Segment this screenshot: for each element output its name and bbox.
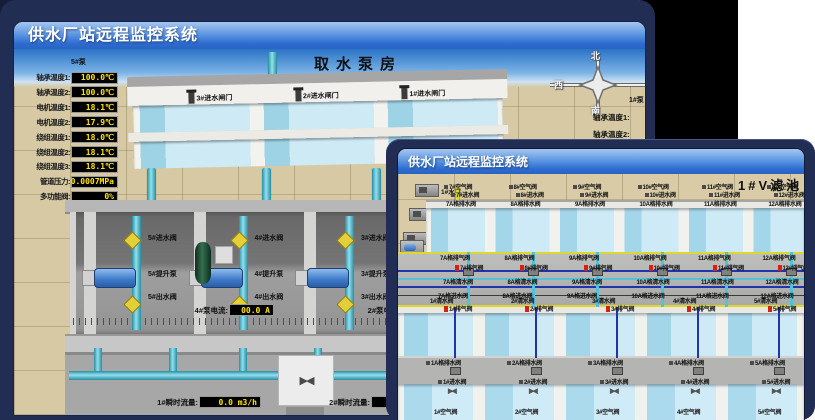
exhaust-valve-label: 12#排气阀 <box>778 263 805 272</box>
bay-outlet-valve-label: 5#出水阀 <box>148 292 177 302</box>
clean-water-valve-label: 10A格清水阀 <box>637 277 670 286</box>
drain-valve-label: 1A格排水阀 <box>426 358 461 367</box>
sensor-readout-row: 电机温度2: 17.9℃ <box>24 116 124 129</box>
valve-icon <box>573 185 577 189</box>
butterfly-valve-icon: ▶◀ <box>529 387 536 395</box>
compass-rose-icon <box>534 49 645 119</box>
valve-icon <box>767 185 771 189</box>
front-window-titlebar[interactable]: 供水厂站远程监控系统 <box>398 149 804 174</box>
gate-label: 1#进水闸门 <box>409 88 445 99</box>
inlet-valve-label: 12#进水阀 <box>774 190 805 199</box>
drain-valve-label: 8A格排水阀 <box>511 199 541 208</box>
drain-valve-label: 9A格排水阀 <box>575 199 605 208</box>
butterfly-valve-icon: ▶◀ <box>448 387 455 395</box>
exhaust-a-valve-label: 9A格排气阀 <box>569 253 599 262</box>
sensor-value: 100.0℃ <box>71 72 118 84</box>
column-valve-icon <box>450 367 461 375</box>
red-valve-icon <box>455 265 459 271</box>
valve-icon <box>669 361 673 365</box>
bay-pump-label: 4#提升泵 <box>255 269 284 279</box>
inlet-valve-label: 7#进水阀 <box>451 190 479 199</box>
intake-gate[interactable]: 3#进水闸门 <box>188 91 232 104</box>
pump1-panel-label: 轴承温度1: <box>593 112 630 123</box>
desktop: 供水厂站远程监控系统 取水泵房 3#进水闸门 <box>0 0 815 420</box>
sensor-readout-row: 轴承温度2: 100.0℃ <box>24 86 124 99</box>
inlet-valve-label: 9#进水阀 <box>580 190 608 199</box>
pipe-stub <box>94 348 102 372</box>
valve-icon <box>645 193 649 197</box>
clean-water-valve-label: 12A格清水阀 <box>766 277 799 286</box>
sensor-value: 18.0℃ <box>71 131 118 143</box>
valve-icon <box>426 361 430 365</box>
drain-valve-label: 4A格排水阀 <box>669 358 704 367</box>
valve-icon <box>750 361 754 365</box>
filter-pool: 7#空气阀 7#进水阀 7A格排水阀 7A格排气阀 7#排气阀 7A格清水阀 7… <box>398 182 804 420</box>
red-valve-icon <box>649 265 653 271</box>
flow1-readout: 1#瞬时流量: 0.0 m3/h <box>118 396 261 408</box>
bay-inlet-valve-label: 5#进水阀 <box>148 233 177 243</box>
butterfly-valve-icon: ▶◀ <box>610 387 617 395</box>
valve-icon <box>709 193 713 197</box>
exhaust-valve-label: 5#排气阀 <box>768 304 796 313</box>
valve-icon <box>702 185 706 189</box>
sensor-label: 电机温度2: <box>24 117 70 128</box>
pump5-panel-header: 5#泵 <box>71 57 86 67</box>
column-pipe <box>535 307 537 358</box>
exhaust-a-valve-label: 10A格排气阀 <box>634 253 667 262</box>
sensor-value: 18.1℃ <box>71 146 118 158</box>
pump4-current-value: 00.0 A <box>229 304 274 316</box>
lift-pump-icon[interactable] <box>295 268 347 286</box>
gate-valve-icon <box>188 92 194 104</box>
flow1-value: 0.0 m3/h <box>199 396 261 408</box>
sensor-value: 100.0℃ <box>71 86 118 98</box>
inlet-valve-label: 3#进水阀 <box>600 377 628 386</box>
exhaust-valve-label: 10#排气阀 <box>649 263 680 272</box>
column-valve-icon <box>612 367 623 375</box>
valve-icon <box>438 380 442 384</box>
control-cabinet <box>215 246 233 264</box>
drain-valve-label: 5A格排水阀 <box>750 358 785 367</box>
column-pipe <box>454 307 456 358</box>
column-pipe <box>697 307 699 358</box>
valve-icon <box>762 380 766 384</box>
drain-valve-label: 12A格排水阀 <box>769 199 802 208</box>
drain-valve-label: 11A格排水阀 <box>704 199 737 208</box>
sensor-label: 绕组温度3: <box>24 161 70 172</box>
exhaust-valve-label: 2#排气阀 <box>525 304 553 313</box>
valve-pedestal <box>286 407 324 415</box>
gate-valve-icon <box>401 87 407 99</box>
back-window-title: 供水厂站远程监控系统 <box>28 27 198 44</box>
red-valve-icon <box>713 265 717 271</box>
pipe-stub <box>239 348 247 372</box>
pipe-stub <box>169 348 177 372</box>
column-pipe <box>616 307 618 358</box>
valve-icon <box>774 193 778 197</box>
filter-scene: 1#V滤池 1#水泵 2#水泵 3#水泵 <box>398 174 804 420</box>
drain-valve-label: 2A格排水阀 <box>507 358 542 367</box>
exhaust-valve-label: 1#排气阀 <box>444 304 472 313</box>
valve-icon <box>588 361 592 365</box>
red-valve-icon <box>584 265 588 271</box>
clean-water-valve-label: 11A格清水阀 <box>701 277 734 286</box>
intake-gate[interactable]: 2#进水闸门 <box>295 89 339 102</box>
flow1-label: 1#瞬时流量: <box>118 397 198 408</box>
compass-west: 西 <box>554 78 563 91</box>
inlet-valve-label: 2#进水阀 <box>519 377 547 386</box>
air-valve-label: 4#空气阀 <box>677 407 700 416</box>
inlet-valve-label: 8#进水阀 <box>516 190 544 199</box>
exhaust-valve-label: 11#排气阀 <box>713 263 744 272</box>
exhaust-valve-label: 3#排气阀 <box>606 304 634 313</box>
clean-water-valve-label: 9A格清水阀 <box>572 277 602 286</box>
valve-icon <box>516 193 520 197</box>
bay-pump-label: 5#提升泵 <box>148 269 177 279</box>
compass-north: 北 <box>591 49 600 62</box>
exhaust-a-valve-label: 11A格排气阀 <box>698 253 731 262</box>
compass: 北 西 南 <box>534 49 645 119</box>
valve-icon <box>451 193 455 197</box>
exhaust-a-valve-label: 7A格排气阀 <box>440 253 470 262</box>
filter-column-bottom[interactable]: 4#清水阀 4#排气阀 4A格排水阀 4#进水阀 ▶◀ 4#空气阀 <box>657 292 737 420</box>
clean-water-valve-label: 7A格清水阀 <box>443 277 473 286</box>
pump4-current-label: 4#泵电流: <box>164 305 228 316</box>
column-valve-icon <box>774 367 785 375</box>
pump-body <box>307 268 349 288</box>
inlet-valve-label: 11#进水阀 <box>709 190 740 199</box>
gate-label: 3#进水闸门 <box>196 93 232 104</box>
valve-icon <box>580 193 584 197</box>
valve-icon <box>638 185 642 189</box>
sensor-label: 电机温度1: <box>24 102 70 113</box>
column-pipe <box>778 307 780 358</box>
sensor-label: 轴承温度1: <box>24 72 70 83</box>
inlet-valve-label: 5#进水阀 <box>762 377 790 386</box>
filter-column-bottom[interactable]: 5#清水阀 5#排气阀 5A格排水阀 5#进水阀 ▶◀ 5#空气阀 <box>738 292 804 420</box>
butterfly-valve-icon: ▶◀ <box>772 387 779 395</box>
column-valve-icon <box>693 367 704 375</box>
gate-valve-icon <box>295 89 301 101</box>
sensor-value: 18.1℃ <box>71 101 118 113</box>
green-tank[interactable] <box>195 242 211 284</box>
bay-outlet-valve-label: 4#出水阀 <box>255 292 284 302</box>
filter-column-bottom[interactable]: 3#清水阀 3#排气阀 3A格排水阀 3#进水阀 ▶◀ 3#空气阀 <box>576 292 656 420</box>
bay-inlet-valve-label: 4#进水阀 <box>255 233 284 243</box>
red-valve-icon <box>444 306 448 312</box>
drain-valve-label: 10A格排水阀 <box>640 199 673 208</box>
red-valve-icon <box>606 306 610 312</box>
sensor-value: 0.0007MPa <box>71 176 118 188</box>
sensor-readout-row: 电机温度1: 18.1℃ <box>24 101 124 114</box>
valve-icon <box>444 185 448 189</box>
gate-label: 2#进水闸门 <box>303 91 339 102</box>
sensor-readout-row: 管道压力: 0.0007MPa <box>24 175 124 188</box>
air-valve-label: 1#空气阀 <box>434 407 457 416</box>
inlet-valve-label: 4#进水阀 <box>681 377 709 386</box>
valve-icon <box>507 361 511 365</box>
red-valve-icon <box>687 306 691 312</box>
inlet-valve-label: 10#进水阀 <box>645 190 676 199</box>
sensor-label: 多功能阀: <box>24 191 70 202</box>
lift-pump-icon[interactable] <box>82 268 134 286</box>
red-valve-icon <box>525 306 529 312</box>
exhaust-valve-label: 8#排气阀 <box>520 263 548 272</box>
sensor-value: 18.1℃ <box>71 161 118 173</box>
air-valve-label: 5#空气阀 <box>758 407 781 416</box>
window-filter-pool: 供水厂站远程监控系统 1#V滤池 1#水泵 2#水泵 <box>398 149 804 420</box>
inlet-valve-label: 1#进水阀 <box>438 377 466 386</box>
pump1-panel-header: 1#泵 <box>629 95 644 105</box>
sensor-label: 轴承温度2: <box>24 87 70 98</box>
valve-icon <box>600 380 604 384</box>
sensor-value: 17.9℃ <box>71 116 118 128</box>
filter-column-bottom[interactable]: 1#清水阀 1#排气阀 1A格排水阀 1#进水阀 ▶◀ 1#空气阀 <box>414 292 494 420</box>
red-valve-icon <box>778 265 782 271</box>
red-valve-icon <box>768 306 772 312</box>
sensor-readout-row: 绕组温度2: 18.1℃ <box>24 146 124 159</box>
filter-column-bottom[interactable]: 2#清水阀 2#排气阀 2A格排水阀 2#进水阀 ▶◀ 2#空气阀 <box>495 292 575 420</box>
exhaust-a-valve-label: 12A格排气阀 <box>763 253 796 262</box>
sensor-label: 管道压力: <box>24 176 70 187</box>
air-valve-label: 2#空气阀 <box>515 407 538 416</box>
back-window-titlebar[interactable]: 供水厂站远程监控系统 <box>14 22 645 49</box>
column-valve-icon <box>531 367 542 375</box>
valve-icon <box>509 185 513 189</box>
drain-valve-label: 7A格排水阀 <box>446 199 476 208</box>
exhaust-valve-label: 7#排气阀 <box>455 263 483 272</box>
intake-gate[interactable]: 1#进水闸门 <box>401 86 445 99</box>
exhaust-valve-label: 9#排气阀 <box>584 263 612 272</box>
drain-valve-label: 3A格排水阀 <box>588 358 623 367</box>
red-valve-icon <box>520 265 524 271</box>
riser-pipe <box>268 52 277 75</box>
air-valve-label: 3#空气阀 <box>596 407 619 416</box>
exhaust-valve-label: 4#排气阀 <box>687 304 715 313</box>
pump-body <box>94 268 136 288</box>
butterfly-valve-icon: ▶◀ <box>691 387 698 395</box>
exhaust-a-valve-label: 8A格排气阀 <box>505 253 535 262</box>
clean-water-valve-label: 8A格清水阀 <box>508 277 538 286</box>
pump4-current-readout: 4#泵电流: 00.0 A <box>164 304 274 316</box>
valve-icon <box>681 380 685 384</box>
front-window-title: 供水厂站远程监控系统 <box>408 155 528 169</box>
sensor-label: 绕组温度1: <box>24 132 70 143</box>
sensor-label: 绕组温度2: <box>24 147 70 158</box>
sensor-readout-row: 绕组温度3: 18.1℃ <box>24 160 124 173</box>
sensor-readout-row: 轴承温度1: 100.0℃ <box>24 71 124 84</box>
valve-icon <box>519 380 523 384</box>
sensor-readout-row: 绕组温度1: 18.0℃ <box>24 131 124 144</box>
flow2-label: 2#瞬时流量: <box>290 397 370 408</box>
